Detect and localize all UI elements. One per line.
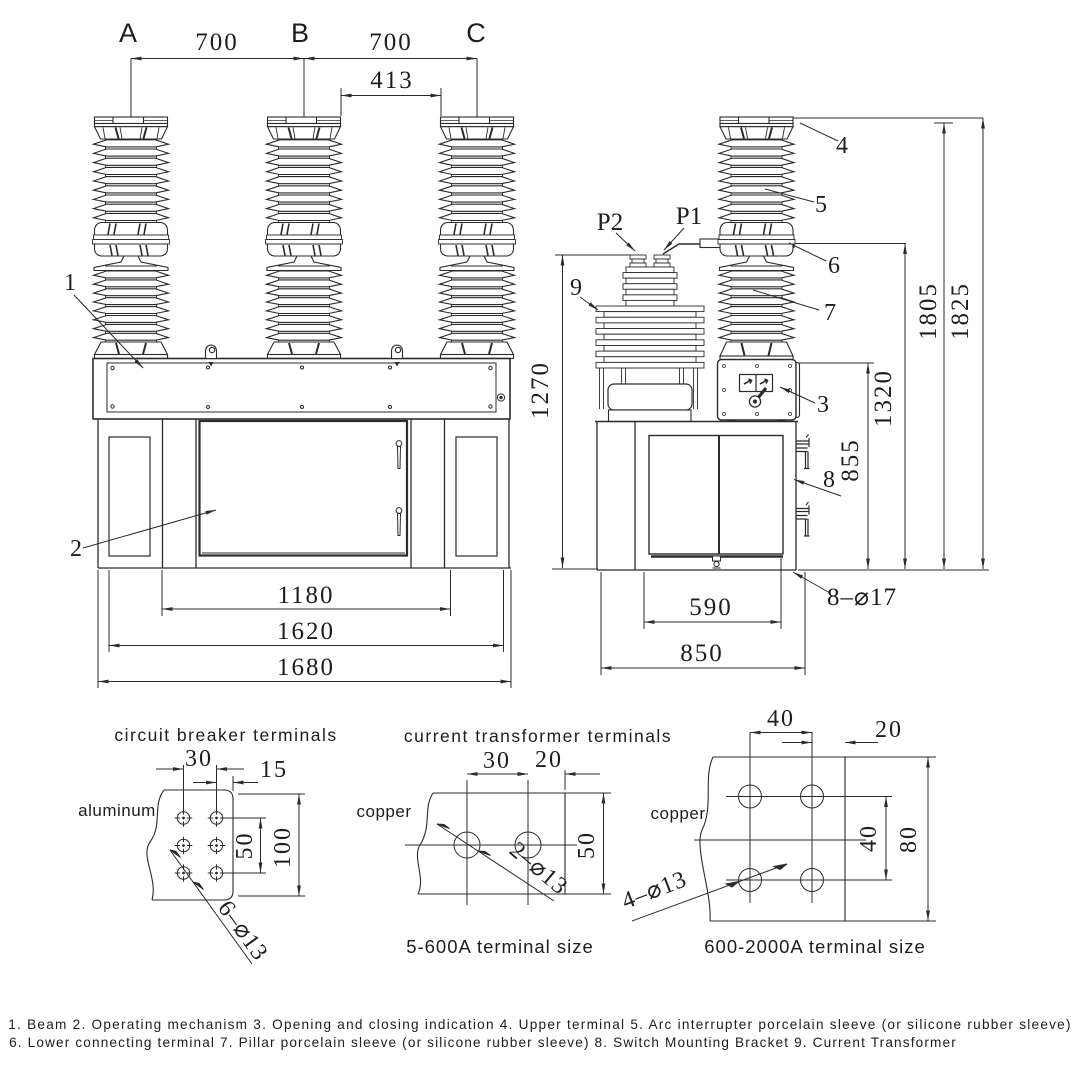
svg-text:1180: 1180 (277, 582, 334, 609)
svg-text:413: 413 (370, 67, 414, 94)
svg-text:1805: 1805 (915, 282, 942, 340)
svg-text:2: 2 (70, 536, 82, 562)
svg-text:15: 15 (260, 757, 288, 783)
svg-text:8: 8 (823, 467, 835, 493)
svg-text:40: 40 (856, 824, 882, 852)
svg-text:855: 855 (837, 438, 864, 482)
svg-text:1270: 1270 (527, 361, 554, 419)
svg-text:700: 700 (369, 29, 413, 56)
svg-text:5: 5 (815, 192, 827, 218)
svg-text:6. Lower connecting terminal 7: 6. Lower connecting terminal 7. Pillar p… (9, 1035, 957, 1050)
svg-text:P2: P2 (597, 209, 623, 236)
svg-text:5-600A terminal size: 5-600A terminal size (406, 936, 594, 957)
svg-text:600-2000A terminal size: 600-2000A terminal size (704, 936, 925, 957)
svg-text:40: 40 (767, 706, 795, 732)
svg-text:8–⌀17: 8–⌀17 (827, 584, 897, 611)
svg-text:1320: 1320 (870, 369, 897, 427)
svg-text:7: 7 (824, 300, 836, 326)
svg-text:4: 4 (836, 133, 848, 159)
svg-text:1620: 1620 (277, 618, 335, 645)
svg-text:80: 80 (896, 825, 922, 853)
svg-text:4–⌀13: 4–⌀13 (618, 866, 690, 914)
svg-text:6–⌀13: 6–⌀13 (212, 896, 273, 966)
svg-text:C: C (466, 18, 486, 48)
svg-text:copper: copper (357, 802, 412, 821)
svg-text:50: 50 (574, 831, 600, 859)
svg-text:copper: copper (651, 804, 706, 823)
svg-text:P1: P1 (676, 203, 702, 230)
svg-text:700: 700 (195, 29, 239, 56)
svg-text:A: A (119, 18, 137, 48)
svg-text:1. Beam 2. Operating mechanism: 1. Beam 2. Operating mechanism 3. Openin… (8, 1017, 1072, 1032)
svg-text:1: 1 (64, 270, 76, 296)
svg-text:850: 850 (680, 640, 724, 667)
svg-text:30: 30 (185, 746, 213, 772)
svg-text:current transformer terminals: current transformer terminals (404, 726, 672, 746)
svg-text:B: B (291, 18, 309, 48)
svg-text:aluminum: aluminum (78, 801, 156, 820)
svg-text:590: 590 (689, 594, 733, 621)
svg-text:30: 30 (483, 748, 511, 774)
svg-text:100: 100 (270, 826, 296, 868)
svg-text:3: 3 (817, 392, 829, 418)
svg-text:20: 20 (535, 747, 563, 773)
svg-text:50: 50 (232, 832, 258, 860)
svg-text:1680: 1680 (277, 654, 335, 681)
svg-text:6: 6 (828, 253, 840, 279)
svg-text:1825: 1825 (947, 282, 974, 340)
svg-text:20: 20 (875, 717, 903, 743)
svg-text:circuit breaker terminals: circuit breaker terminals (114, 725, 337, 745)
